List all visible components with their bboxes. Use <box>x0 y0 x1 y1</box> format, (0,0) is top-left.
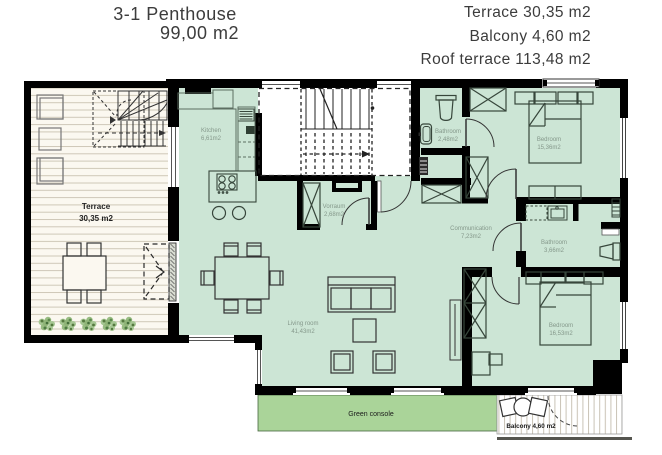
svg-text:3,66m2: 3,66m2 <box>544 248 565 254</box>
svg-text:Communication: Communication <box>450 226 492 232</box>
svg-text:2,48m2: 2,48m2 <box>438 137 459 143</box>
svg-text:99,00 m2: 99,00 m2 <box>160 23 239 43</box>
svg-text:41,43m2: 41,43m2 <box>291 329 315 335</box>
svg-text:2,68m2: 2,68m2 <box>324 212 345 218</box>
svg-text:Balcony 4,60 m2: Balcony 4,60 m2 <box>506 423 556 430</box>
svg-text:Vorraum: Vorraum <box>323 204 346 210</box>
svg-text:15,36m2: 15,36m2 <box>537 145 561 151</box>
svg-text:Bedroom: Bedroom <box>537 137 561 143</box>
svg-text:Balcony 4,60 m2: Balcony 4,60 m2 <box>470 28 591 45</box>
svg-text:6,61m2: 6,61m2 <box>201 136 222 142</box>
svg-text:Terrace 30,35 m2: Terrace 30,35 m2 <box>464 4 591 21</box>
svg-text:Bathroom: Bathroom <box>541 240 567 246</box>
svg-text:7,23m2: 7,23m2 <box>461 234 482 240</box>
svg-text:Terrace: Terrace <box>82 202 111 211</box>
svg-text:16,53m2: 16,53m2 <box>549 331 573 337</box>
svg-text:Living room: Living room <box>287 321 318 327</box>
svg-text:Green console: Green console <box>348 411 394 418</box>
svg-text:Roof terrace 113,48 m2: Roof terrace 113,48 m2 <box>421 51 592 68</box>
svg-text:30,35 m2: 30,35 m2 <box>79 214 113 223</box>
svg-text:3-1 Penthouse: 3-1 Penthouse <box>113 4 237 24</box>
svg-text:Kitchen: Kitchen <box>201 128 221 134</box>
svg-text:Bedroom: Bedroom <box>549 323 573 329</box>
svg-text:Bathroom: Bathroom <box>435 129 461 135</box>
